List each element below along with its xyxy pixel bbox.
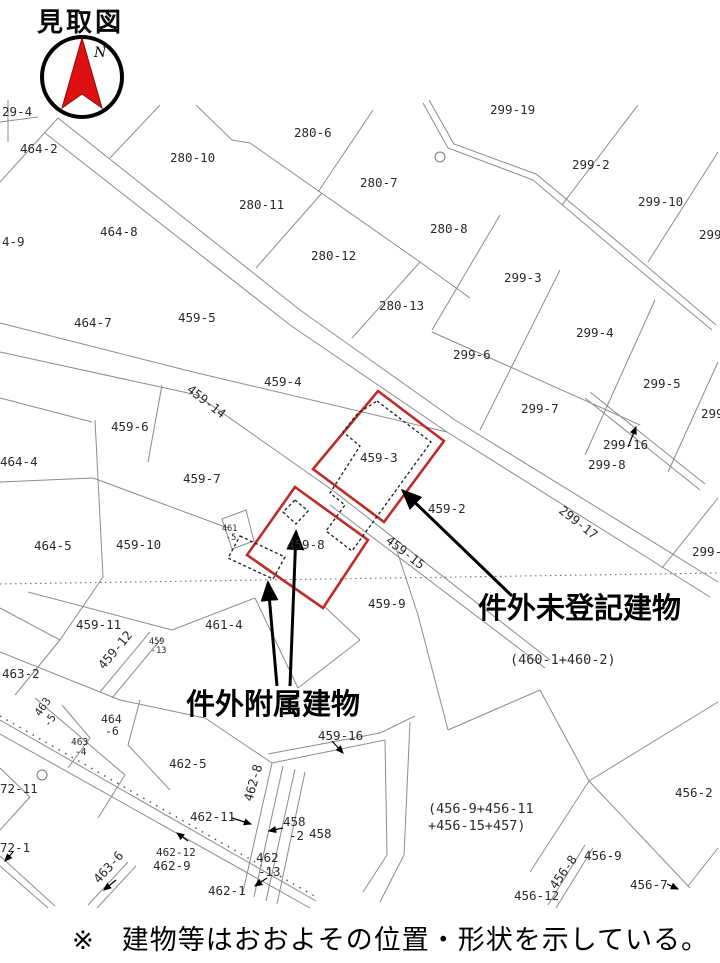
parcel-label: 464-2 <box>20 141 58 156</box>
parcel-label: 299 <box>701 406 720 421</box>
note-text: 建物等はおおよその位置・形状を示している。 <box>122 918 709 957</box>
parcel-label: 464-7 <box>74 315 112 330</box>
parcel-label: 299-2 <box>572 157 610 172</box>
parcel-label: 463-6 <box>90 848 126 886</box>
arrow-462-12 <box>177 833 188 841</box>
cadastral-map: N 299-1929-4464-2280-6280-10280-7299-229… <box>0 0 720 963</box>
parcel-label: -2 <box>289 828 304 843</box>
parcel-label: 464-5 <box>34 538 72 553</box>
parcel-label: 280-7 <box>360 175 398 190</box>
parcel-label: -13 <box>258 864 281 879</box>
parcel-label: 459-9 <box>368 596 406 611</box>
parcel-label: 299-7 <box>521 401 559 416</box>
north-compass: N <box>42 37 122 117</box>
parcel-label: 456-7 <box>630 877 668 892</box>
parcel-label: 459-6 <box>111 419 149 434</box>
parcel-label: 299-16 <box>603 437 648 452</box>
parcel-label: +456-15+457) <box>428 818 526 834</box>
parcel-label: 464-8 <box>100 224 138 239</box>
parcel-label: 299-17 <box>556 503 601 543</box>
annotation-label: 件外附属建物 <box>186 687 360 721</box>
parcel-label: 456-9 <box>584 848 622 863</box>
parcel-label: 299- <box>692 544 720 559</box>
parcel-label: -5 <box>226 533 236 543</box>
parcel-label: 72-1 <box>0 840 30 855</box>
parcel-label: 459-2 <box>428 501 466 516</box>
unregistered-building-outline <box>326 401 431 551</box>
parcel-label: -13 <box>151 646 166 656</box>
parcel-label: 459-11 <box>76 617 121 632</box>
parcel-label: 458 <box>309 826 332 841</box>
parcel-label: 462-9 <box>153 858 191 873</box>
compass-north-label: N <box>93 45 107 61</box>
parcel-label: 462-11 <box>190 809 235 824</box>
arrow-456-7 <box>667 884 678 889</box>
parcel-label: 299 <box>699 227 720 242</box>
parcel-label: -4 <box>75 747 87 758</box>
parcel-label: 459-10 <box>116 537 161 552</box>
parcel-label: (460-1+460-2) <box>510 652 616 668</box>
circled-mark <box>37 152 445 780</box>
parcel-label: 456-2 <box>675 785 713 800</box>
arrow-458-2 <box>269 828 283 831</box>
parcel-label: 4-9 <box>2 234 25 249</box>
parcel-label: 459-3 <box>360 450 398 465</box>
parcel-label: 459-7 <box>183 471 221 486</box>
parcel-label: 280-11 <box>239 197 284 212</box>
arrow-to-attached-building <box>268 583 277 686</box>
footer-note: ※ 建物等はおおよその位置・形状を示している。 <box>0 918 720 957</box>
parcel-label: 462-5 <box>169 756 207 771</box>
parcel-label: 459-14 <box>184 382 229 422</box>
parcel-label: 299-8 <box>588 457 626 472</box>
parcel-label: 280-6 <box>294 125 332 140</box>
attached-building-outline <box>283 500 308 524</box>
parcel-label: 299-19 <box>490 102 535 117</box>
parcel-label: 459-16 <box>318 728 363 743</box>
red-parcel-outline <box>247 391 444 608</box>
parcel-label: 459-5 <box>178 310 216 325</box>
annotation-label: 件外未登記建物 <box>478 591 681 625</box>
parcel-label: 459-15 <box>383 533 428 573</box>
parcel-label: 29-4 <box>2 104 32 119</box>
arrow-462-13 <box>255 878 267 886</box>
parcel-label: 299-10 <box>638 194 683 209</box>
parcel-label: 459-4 <box>264 374 302 389</box>
parcel-label: 462 <box>256 850 279 865</box>
parcel-label: 299-3 <box>504 270 542 285</box>
parcel-label: -6 <box>105 724 119 738</box>
parcel-label: 464-4 <box>0 454 38 469</box>
parcel-label: 280-10 <box>170 150 215 165</box>
parcel-label: 72-11 <box>0 781 38 796</box>
parcel-label: 459-8 <box>287 537 325 552</box>
parcel-label: 280-8 <box>430 221 468 236</box>
parcel-label: 456-12 <box>514 888 559 903</box>
parcel-label: 462-8 <box>240 763 265 803</box>
parcel-label: 458 <box>283 814 306 829</box>
arrow-to-attached-building <box>290 532 296 686</box>
parcel-label: 299-5 <box>643 376 681 391</box>
parcel-label: 461-4 <box>205 617 243 632</box>
note-marker: ※ <box>72 926 94 956</box>
parcel-label: 456-8 <box>546 852 580 891</box>
parcel-label: 459-12 <box>95 628 136 672</box>
parcel-label: 463-2 <box>2 666 40 681</box>
sketch-map-page: 見取図 <box>0 0 720 963</box>
parcel-label: 299-6 <box>453 347 491 362</box>
parcel-label: 462-1 <box>208 883 246 898</box>
parcel-label: 299-4 <box>576 325 614 340</box>
parcel-label: 280-13 <box>379 298 424 313</box>
parcel-label: 280-12 <box>311 248 356 263</box>
parcel-label: (456-9+456-11 <box>428 801 534 817</box>
